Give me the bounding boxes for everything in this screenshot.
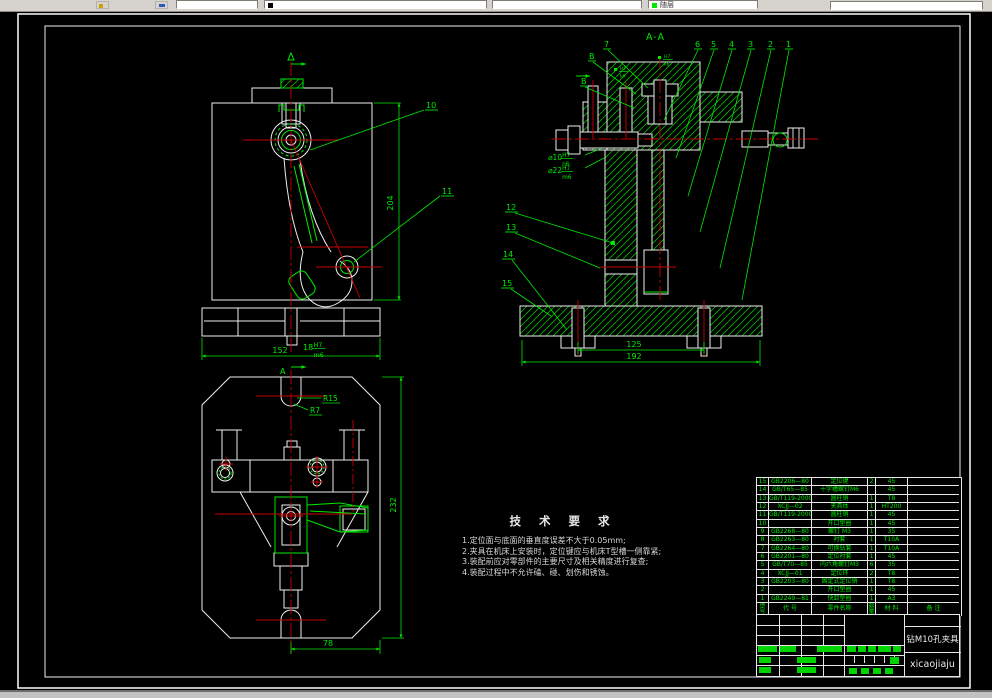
parts-table-cell: 12 xyxy=(757,503,769,511)
parts-table-cell: 定位环 xyxy=(812,570,868,578)
parts-table-cell: 可换钻套 xyxy=(812,545,868,553)
parts-table-cell: 35 xyxy=(876,561,908,569)
parts-table-cell: 圆柱销 xyxy=(812,495,868,503)
parts-table-cell: GB2263—80 xyxy=(769,536,812,544)
parts-table-cell: 1 xyxy=(868,511,876,519)
toolbar-button-icon[interactable] xyxy=(96,1,109,9)
parts-table-cell: GB2264—80 xyxy=(769,545,812,553)
parts-table-cell: 螺钉 M3 xyxy=(812,528,868,536)
parts-table-row: 14GB/T65—85十字槽螺钉M645 xyxy=(757,486,961,494)
technical-requirement-line: 2.夹具在机床上安装时，定位键应与机床T型槽一侧靠紧; xyxy=(462,547,694,558)
parts-table-cell: 9 xyxy=(757,528,769,536)
radius-leader xyxy=(294,404,308,410)
dimension-value: 152 xyxy=(272,346,287,355)
technical-requirements: 技 术 要 求 1.定位面与底面的垂直度误差不大于0.05mm;2.夹具在机床上… xyxy=(462,513,694,578)
parts-table-cell xyxy=(908,528,959,536)
parts-table-cell xyxy=(908,553,959,561)
parts-table-cell: GB/T119-2000 xyxy=(769,495,812,503)
color-combo-value: 随层 xyxy=(660,1,674,10)
callout-number: A xyxy=(280,367,286,376)
parts-table-row: 5GB/T70—85内六角螺钉M3635 xyxy=(757,561,961,569)
title-block-text-blob xyxy=(873,668,881,674)
callout-number: B xyxy=(589,52,595,61)
parts-table-cell: 内六角螺钉M3 xyxy=(812,561,868,569)
callout-number: 5 xyxy=(711,40,716,49)
dimension-value: 232 xyxy=(389,497,398,512)
parts-table-cell: 45 xyxy=(876,520,908,528)
color-swatch-icon xyxy=(652,3,657,8)
parts-table-cell: 2 xyxy=(868,570,876,578)
parts-table-cell: T10A xyxy=(876,536,908,544)
fit-lower: k6 xyxy=(664,61,670,67)
parts-table-cell: 35 xyxy=(876,528,908,536)
title-block-gridline xyxy=(844,665,904,666)
fit-lower: k6 xyxy=(620,73,626,79)
parts-table-cell: 45 xyxy=(876,511,908,519)
fit-dot xyxy=(614,68,617,71)
fit-upper: H7 xyxy=(664,54,670,60)
title-block: 钻M10孔夹具 xicaojiaju xyxy=(756,614,960,677)
parts-table-cell: 45 xyxy=(876,486,908,494)
parts-table-row: 13GB/T119-2000圆柱销1T8 xyxy=(757,495,961,503)
title-block-text-blob xyxy=(759,667,771,673)
parts-table-cell: 1 xyxy=(868,545,876,553)
parts-table-cell: GB2203—80 xyxy=(769,578,812,586)
parts-table-cell: 45 xyxy=(876,553,908,561)
parts-table-cell: 14 xyxy=(757,486,769,494)
parts-table-cell: 2 xyxy=(757,586,769,594)
parts-table-cell xyxy=(908,478,959,486)
title-block-gridline xyxy=(874,655,875,663)
drawing-title: 钻M10孔夹具 xyxy=(905,626,960,652)
section-view: A-A xyxy=(520,32,818,366)
title-block-text-blob xyxy=(868,646,876,652)
parts-table-cell: XCJJ—02 xyxy=(769,503,812,511)
front-view xyxy=(202,53,401,367)
parts-table-cell: T8 xyxy=(876,570,908,578)
parts-table-cell xyxy=(769,586,812,594)
drawing-file-label: xicaojiaju xyxy=(905,652,960,676)
parts-table-cell xyxy=(908,595,959,603)
callout-dot xyxy=(611,241,615,245)
toolbar-field[interactable] xyxy=(830,1,983,10)
section-hatched-body xyxy=(520,62,762,336)
callout-number: 7 xyxy=(604,40,609,49)
parts-table-cell: 8 xyxy=(757,536,769,544)
callout-number: 14 xyxy=(503,250,513,259)
parts-table-row: 6GB2201—80定位衬套145 xyxy=(757,553,961,561)
section-label: A-A xyxy=(646,32,665,43)
callout-number: 10 xyxy=(426,101,436,110)
parts-table-cell: 7 xyxy=(757,545,769,553)
parts-table-cell: 1 xyxy=(868,578,876,586)
style-combo[interactable] xyxy=(492,0,642,9)
parts-table-cell: GB2201—80 xyxy=(769,553,812,561)
parts-table-cell: 固定式定位销 xyxy=(812,578,868,586)
callout-number: 3 xyxy=(748,40,753,49)
callout-number: 13 xyxy=(506,223,516,232)
parts-table-cell: 5 xyxy=(757,561,769,569)
parts-table-cell: 开口垫圈 xyxy=(812,586,868,594)
fit-upper: H7 xyxy=(620,66,626,72)
dimension-value: 204 xyxy=(386,195,395,210)
title-block-text-blob xyxy=(885,668,893,674)
fit-dot xyxy=(658,56,661,59)
parts-table-cell: 45 xyxy=(876,478,908,486)
callout-leader xyxy=(720,50,771,268)
title-block-text-blob xyxy=(858,646,866,652)
cad-application-window: 随层 xyxy=(0,0,992,698)
parts-table-cell: GB2268—80 xyxy=(769,528,812,536)
fit-main: ⌀22 xyxy=(548,166,562,175)
title-block-text-blob xyxy=(797,657,816,663)
title-block-text-blob xyxy=(890,657,899,664)
title-block-gridline xyxy=(757,655,844,656)
front-view-green-detail xyxy=(275,79,354,301)
parts-table-cell: 1 xyxy=(868,528,876,536)
parts-table-cell: 定位衬套 xyxy=(812,553,868,561)
parts-table-cell: 3 xyxy=(757,578,769,586)
parts-table-cell: 1 xyxy=(868,595,876,603)
parts-table-cell: 1 xyxy=(757,595,769,603)
parts-table-cell: T8 xyxy=(876,578,908,586)
bottom-view-dim-lines xyxy=(291,377,404,654)
parts-table-row: 8GB2263—80衬套1T10A xyxy=(757,536,961,544)
title-block-text-blob xyxy=(878,646,891,652)
title-block-text-blob xyxy=(817,646,842,652)
title-block-gridline xyxy=(864,655,865,663)
fit-leader xyxy=(585,158,604,168)
fit-main: ⌀10 xyxy=(548,153,562,162)
parts-table-cell: 圆柱销 xyxy=(812,511,868,519)
title-block-gridline xyxy=(854,655,855,663)
parts-table-cell: 衬套 xyxy=(812,536,868,544)
technical-requirement-line: 1.定位面与底面的垂直度误差不大于0.05mm; xyxy=(462,536,694,547)
parts-table-cell xyxy=(908,578,959,586)
bottom-view-clamp xyxy=(219,460,368,553)
title-block-text-blob xyxy=(893,646,901,652)
callout-number: B xyxy=(581,77,587,86)
parts-table-cell xyxy=(769,520,812,528)
technical-requirement-line: 4.装配过程中不允许磕、碰、划伤和锈蚀。 xyxy=(462,568,694,579)
title-block-text-blob xyxy=(759,657,771,663)
parts-table-cell: T10A xyxy=(876,545,908,553)
parts-table-cell: 1 xyxy=(868,503,876,511)
parts-table-cell xyxy=(908,536,959,544)
parts-table-cell: 6 xyxy=(868,561,876,569)
parts-table-row: 10开口垫圈145 xyxy=(757,520,961,528)
parts-table-row: 7GB2264—80可换钻套1T10A xyxy=(757,545,961,553)
parts-table-cell: GB/T119-2000 xyxy=(769,511,812,519)
callout-number: 15 xyxy=(502,279,512,288)
parts-table-cell: GB2206—80 xyxy=(769,478,812,486)
parts-table-row: 15GB2206—80定位键245 xyxy=(757,478,961,486)
fit-main: 18 xyxy=(303,343,313,352)
title-block-gridline xyxy=(757,625,844,626)
fit-lower: m6 xyxy=(562,175,572,181)
technical-requirements-title: 技 术 要 求 xyxy=(462,513,664,529)
dimension-value: 78 xyxy=(323,639,333,648)
parts-table-cell: 6 xyxy=(757,553,769,561)
fit-upper: H7 xyxy=(314,342,323,349)
title-block-text-blob xyxy=(849,668,857,674)
parts-table-row: 11GB/T119-2000圆柱销145 xyxy=(757,511,961,519)
title-block-text-blob xyxy=(758,646,777,652)
parts-table-cell: 1 xyxy=(868,536,876,544)
callout-number: 12 xyxy=(506,203,516,212)
bottom-view xyxy=(202,370,404,654)
parts-table-cell xyxy=(908,486,959,494)
title-block-gridline xyxy=(757,665,844,666)
layer-combo[interactable] xyxy=(264,0,487,9)
parts-table-cell: 4 xyxy=(757,570,769,578)
callout-number: 6 xyxy=(695,40,700,49)
toolbar: 随层 xyxy=(0,0,992,12)
parts-table-cell: XCJJ—01 xyxy=(769,570,812,578)
parts-table-cell: 1 xyxy=(868,495,876,503)
callout-number: 4 xyxy=(729,40,734,49)
parts-table-row: 12XCJJ—02夹具体1HT200 xyxy=(757,503,961,511)
parts-table-cell xyxy=(908,503,959,511)
parts-table-cell xyxy=(908,586,959,594)
callout-number: 1 xyxy=(786,40,791,49)
title-block-gridline xyxy=(884,655,885,663)
dimension-value: 192 xyxy=(626,352,641,361)
parts-table-cell xyxy=(908,545,959,553)
parts-table-cell: 1 xyxy=(868,553,876,561)
parts-table-cell: GB2249—81 xyxy=(769,595,812,603)
toolbar-combo-small[interactable] xyxy=(176,0,258,9)
dimension-labels: 20415223278125192 xyxy=(272,195,641,648)
technical-requirement-line: 3.装配前应对零部件的主要尺寸及相关精度进行复查; xyxy=(462,557,694,568)
parts-table-cell: 快卸垫圈 xyxy=(812,595,868,603)
parts-table-cell xyxy=(908,520,959,528)
parts-table-cell: 夹具体 xyxy=(812,503,868,511)
parts-table-cell: 13 xyxy=(757,495,769,503)
parts-table-cell: T8 xyxy=(876,495,908,503)
parts-table-cell: 十字槽螺钉M6 xyxy=(812,486,868,494)
parts-table-cell: 开口垫圈 xyxy=(812,520,868,528)
parts-table-cell: A3 xyxy=(876,595,908,603)
parts-table-cell: 15 xyxy=(757,478,769,486)
callout-number: 2 xyxy=(768,40,773,49)
parts-table-cell: 11 xyxy=(757,511,769,519)
radius-value: R15 xyxy=(323,394,338,403)
radius-value: R7 xyxy=(310,406,320,415)
callout-number: 11 xyxy=(442,187,452,196)
parts-table-cell xyxy=(908,561,959,569)
parts-table-cell: GB/T70—85 xyxy=(769,561,812,569)
parts-table-cell xyxy=(908,570,959,578)
dimension-value: 125 xyxy=(626,340,641,349)
callout-leader xyxy=(742,50,789,300)
fit-upper: H7 xyxy=(562,153,570,159)
title-block-gridline xyxy=(757,635,844,636)
parts-table-cell: 定位键 xyxy=(812,478,868,486)
parts-table-cell: 45 xyxy=(876,586,908,594)
parts-table-cell: HT200 xyxy=(876,503,908,511)
parts-table-row: 4XCJJ—01定位环2T8 xyxy=(757,570,961,578)
layer-icon xyxy=(268,3,273,8)
color-combo[interactable]: 随层 xyxy=(648,0,758,9)
title-block-text-blob xyxy=(847,646,856,652)
callout-leader xyxy=(515,233,600,268)
callout-leader xyxy=(310,110,424,150)
title-block-text-blob xyxy=(797,667,816,673)
parts-table-cell: 10 xyxy=(757,520,769,528)
parts-table-row: 1GB2249—81快卸垫圈1A3 xyxy=(757,595,961,603)
fit-lower: m6 xyxy=(314,352,324,359)
callout-leader xyxy=(354,196,440,262)
parts-table-row: 2开口垫圈145 xyxy=(757,586,961,594)
parts-table-cell: 2 xyxy=(868,478,876,486)
parts-table-cell: 1 xyxy=(868,586,876,594)
status-bar xyxy=(0,690,992,698)
parts-table-cell: GB/T65—85 xyxy=(769,486,812,494)
toolbar-button-dropdown-icon[interactable] xyxy=(155,1,168,9)
parts-table-cell xyxy=(908,495,959,503)
parts-list-table: 15GB2206—80定位键24514GB/T65—85十字槽螺钉M64513G… xyxy=(756,477,962,616)
parts-table-cell xyxy=(868,486,876,494)
parts-table-row: 9GB2268—80螺钉 M3135 xyxy=(757,528,961,536)
title-block-text-blob xyxy=(861,668,869,674)
fit-upper: H7 xyxy=(562,166,570,172)
parts-table-row: 3GB2203—80固定式定位销1T8 xyxy=(757,578,961,586)
parts-table-cell xyxy=(908,511,959,519)
callout-leader xyxy=(515,213,613,243)
parts-table-cell: 1 xyxy=(868,520,876,528)
title-block-text-blob xyxy=(780,646,796,652)
